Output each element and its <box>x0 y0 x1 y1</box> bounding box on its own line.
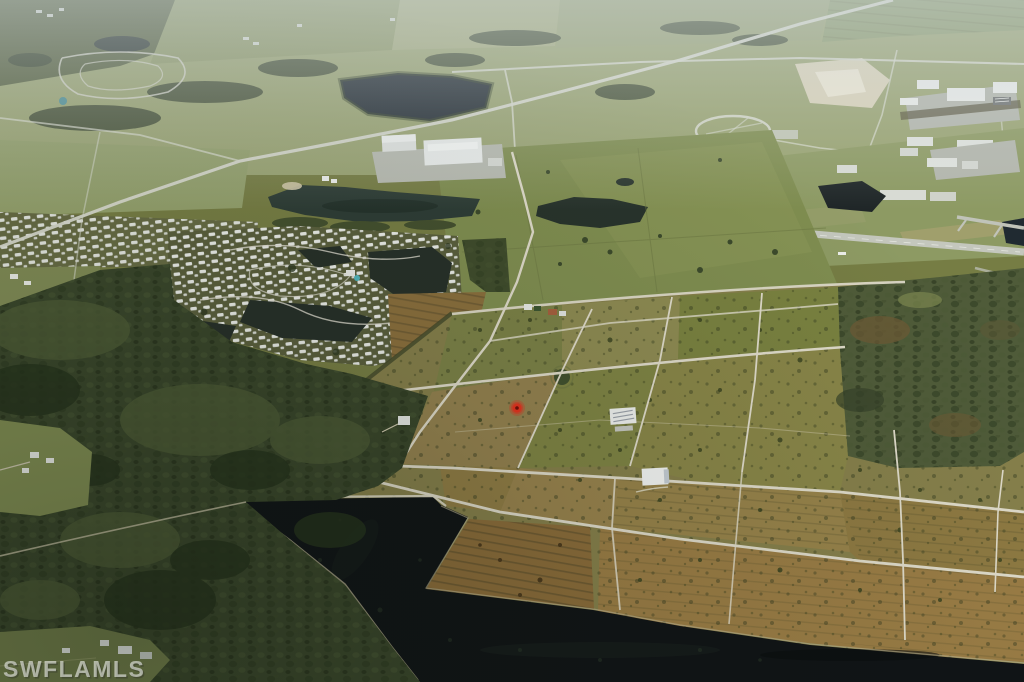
watermark-text: SWFLAMLS <box>3 656 145 682</box>
aerial-photo-canvas: SWFLAMLS SWFLAMLS <box>0 0 1024 682</box>
aerial-photo: SWFLAMLS SWFLAMLS <box>0 0 1024 682</box>
vignette <box>0 0 1024 682</box>
